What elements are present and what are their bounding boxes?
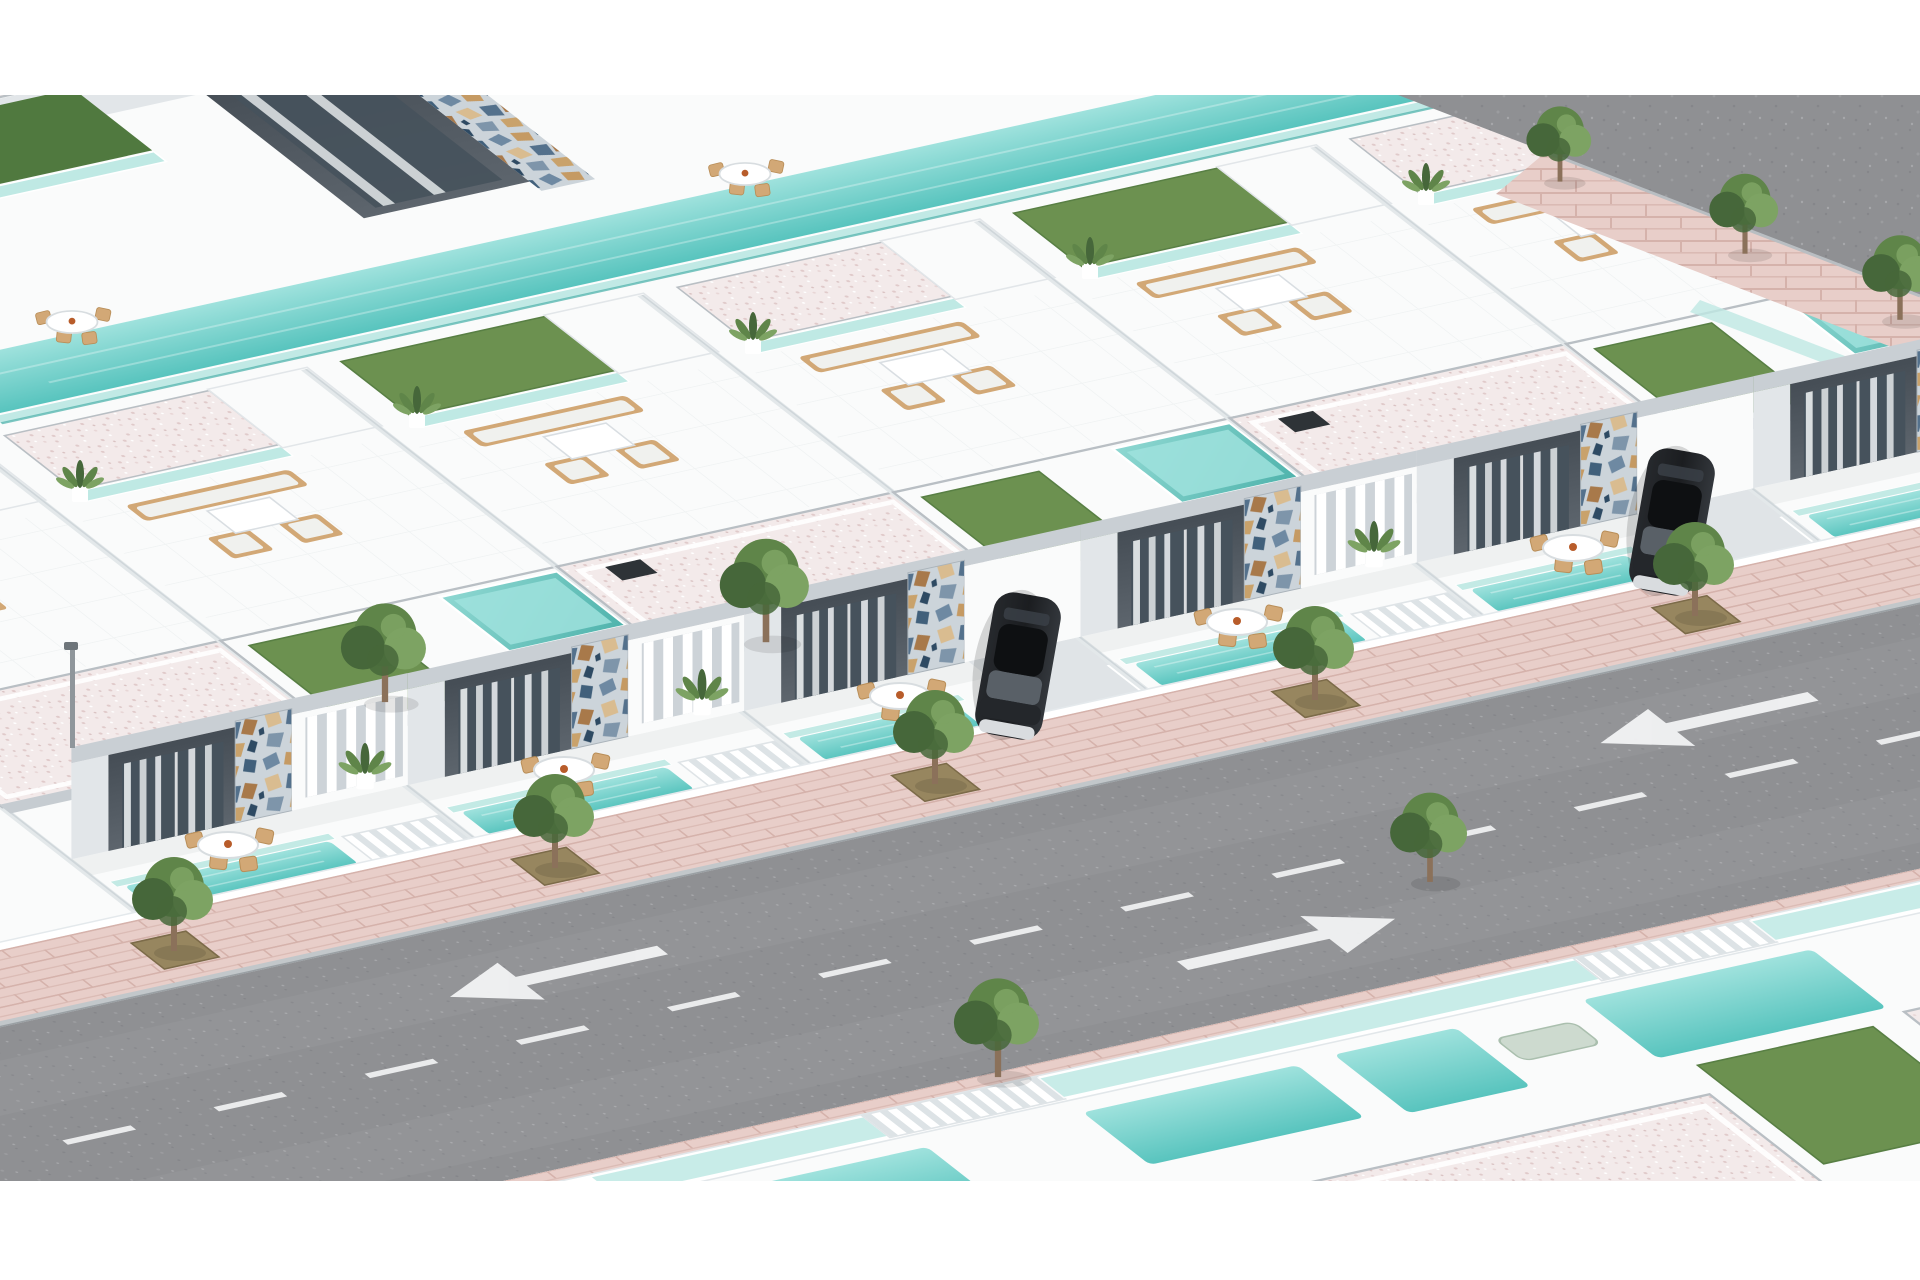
villa-development-render [0, 0, 1920, 1280]
render-canvas [0, 0, 1920, 1280]
